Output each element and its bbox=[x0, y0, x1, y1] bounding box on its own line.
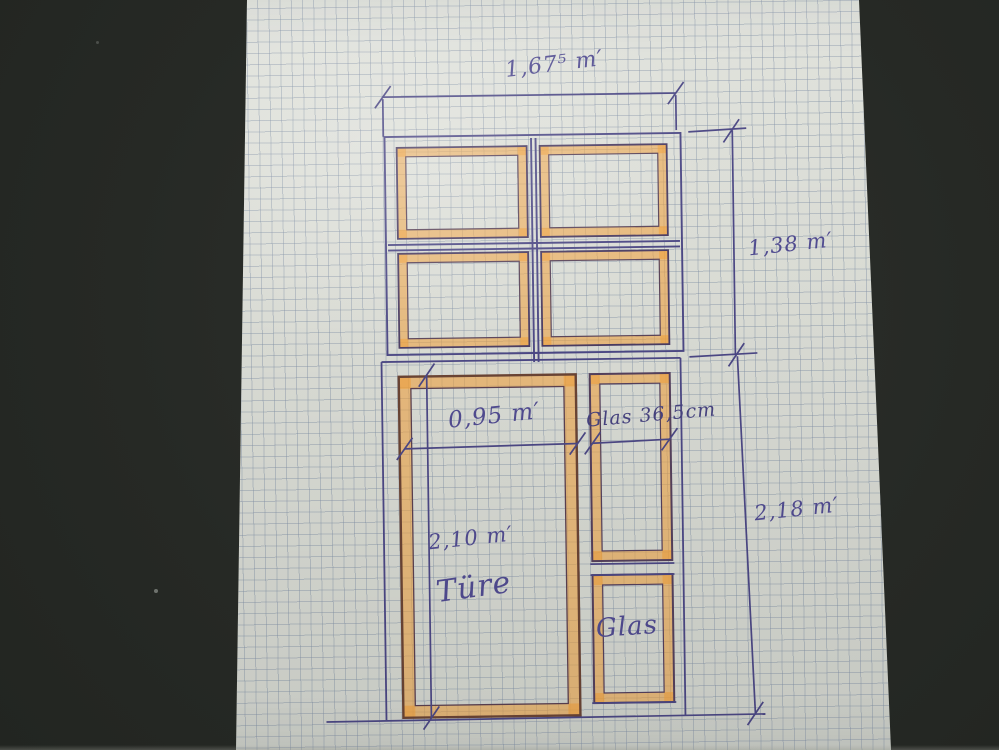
graph-paper-sheet: 1,67⁵ m′ 1,38 m′ 2,18 m′ 0,95 m′ Glas 36… bbox=[0, 0, 999, 750]
table-edge bbox=[0, 745, 999, 750]
door-window-sketch: 1,67⁵ m′ 1,38 m′ 2,18 m′ 0,95 m′ Glas 36… bbox=[0, 0, 999, 750]
sketch-linework bbox=[0, 0, 999, 750]
dim-door-width bbox=[396, 432, 585, 460]
upper-window bbox=[384, 133, 683, 364]
window-frame bbox=[384, 133, 683, 364]
dust-speck bbox=[96, 41, 99, 44]
dust-speck bbox=[154, 589, 158, 593]
dim-lower-height bbox=[737, 356, 763, 725]
dim-total-width bbox=[375, 82, 685, 137]
photo-of-hand-drawn-plan: 1,67⁵ m′ 1,38 m′ 2,18 m′ 0,95 m′ Glas 36… bbox=[0, 0, 999, 750]
glass-part-label: Glas bbox=[595, 610, 659, 644]
